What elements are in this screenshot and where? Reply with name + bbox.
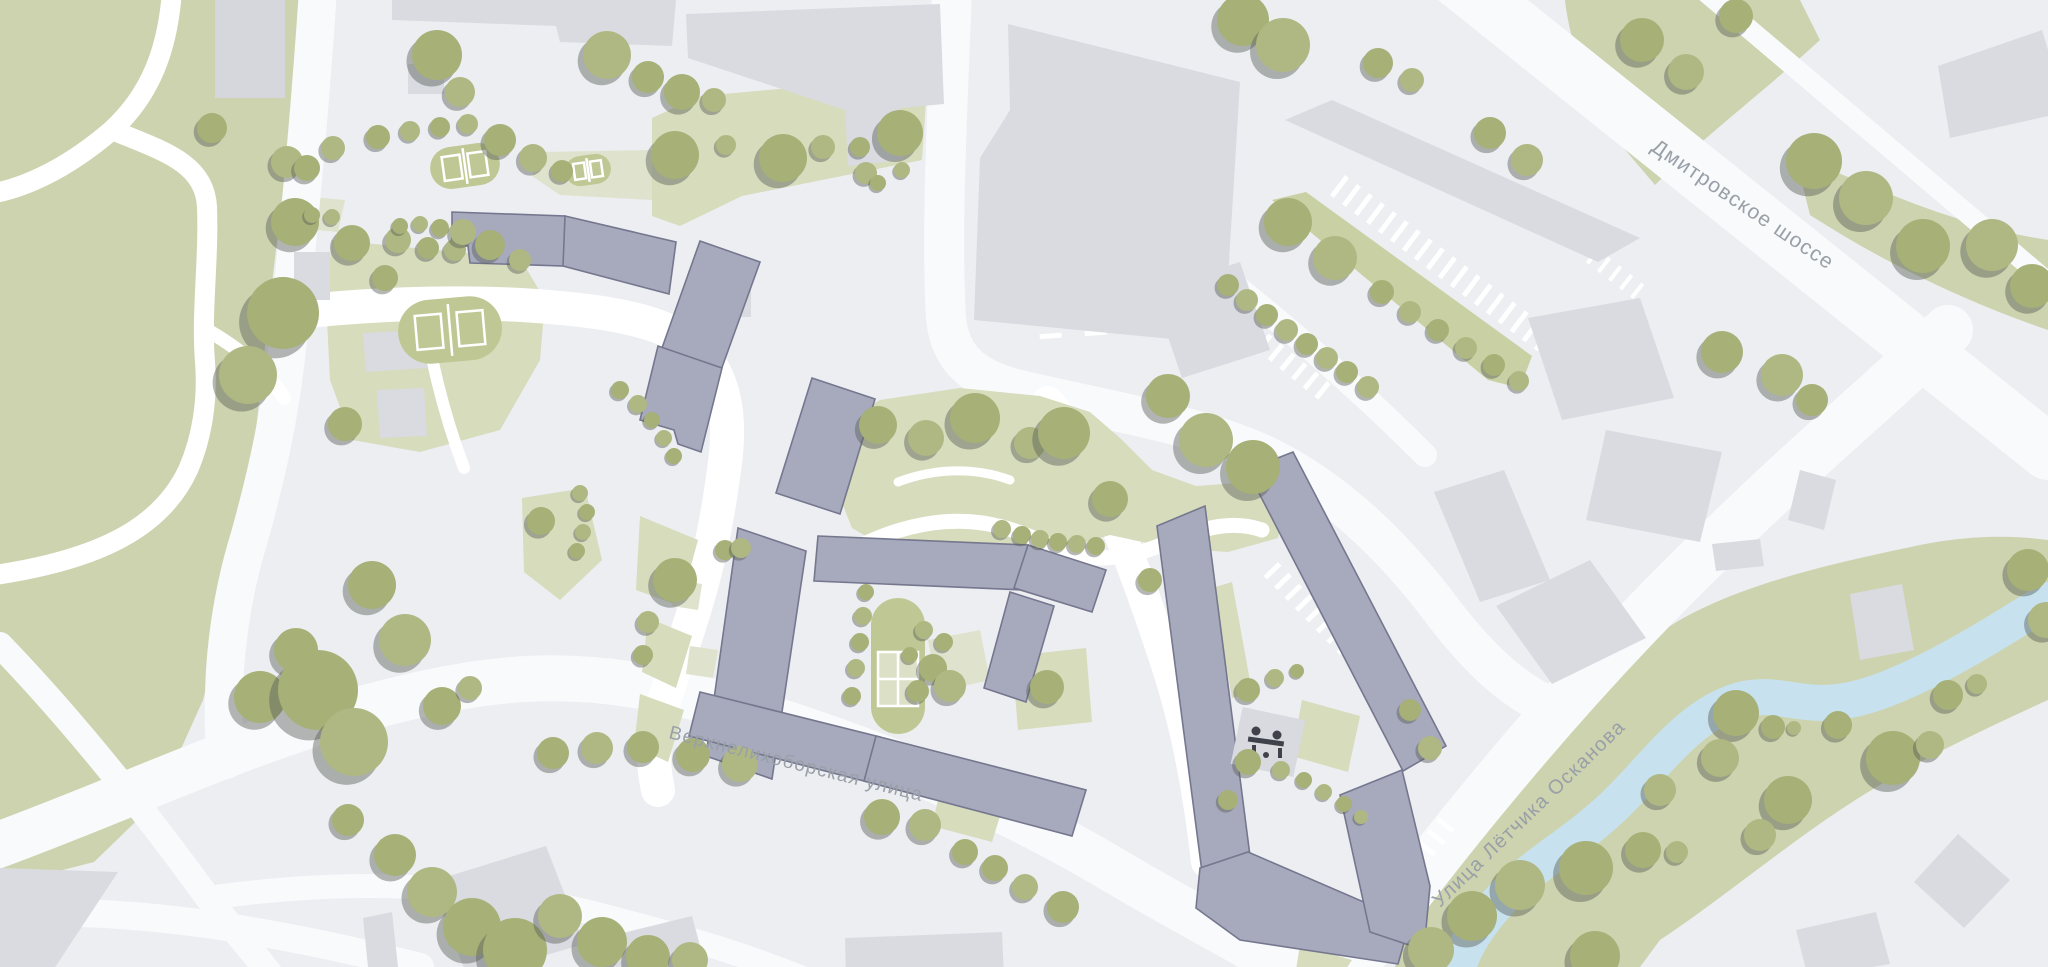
tree [850, 137, 870, 157]
tree [651, 131, 699, 179]
tree [1370, 280, 1394, 304]
tree [1256, 304, 1278, 326]
tree [1455, 337, 1477, 359]
tree [1276, 319, 1298, 341]
tree [372, 265, 398, 291]
tree [294, 155, 320, 181]
tree [1266, 669, 1284, 687]
pale-court-2 [686, 646, 718, 678]
tree [716, 135, 736, 155]
tree [1744, 819, 1776, 851]
tree [1719, 0, 1753, 33]
tree [1217, 274, 1239, 296]
tree [908, 420, 944, 456]
tree [1400, 68, 1424, 92]
tree [1354, 810, 1368, 824]
tree [374, 834, 416, 876]
tree [859, 406, 897, 444]
tree [1668, 54, 1704, 90]
tree [1313, 236, 1357, 280]
tree [854, 607, 872, 625]
tree [1796, 384, 1828, 416]
tree [1701, 739, 1739, 777]
tree [731, 538, 751, 558]
tree [445, 77, 475, 107]
tree [1761, 715, 1785, 739]
tree [637, 611, 659, 633]
tree [1235, 749, 1261, 775]
tree [1824, 711, 1852, 739]
tree [247, 277, 319, 349]
tree [1038, 407, 1090, 459]
tree [324, 209, 340, 225]
tree [1049, 533, 1067, 551]
tree [1068, 535, 1086, 553]
tree [332, 804, 364, 836]
tree [527, 507, 555, 535]
tree [1701, 331, 1743, 373]
tree [1226, 440, 1280, 494]
sports-court [871, 598, 925, 734]
tree [519, 144, 547, 172]
tree [909, 809, 941, 841]
building [215, 0, 285, 98]
tree [870, 175, 886, 191]
tree [1236, 678, 1260, 702]
tree [902, 647, 918, 663]
tree [1786, 133, 1842, 189]
tree [1336, 361, 1358, 383]
tree [1644, 774, 1676, 806]
tree [1620, 18, 1664, 62]
tree [1966, 219, 2018, 271]
tree [843, 687, 861, 705]
tree [219, 346, 277, 404]
tree [666, 448, 682, 464]
building [1712, 539, 1764, 571]
tree [632, 61, 664, 93]
tree [877, 110, 923, 156]
tree [551, 160, 573, 182]
tree [348, 561, 396, 609]
tree [1296, 772, 1312, 788]
tree [952, 839, 978, 865]
tree [1916, 731, 1944, 759]
tree [400, 121, 420, 141]
project-building [814, 536, 1028, 590]
tree [627, 731, 659, 763]
tree [431, 219, 449, 237]
tree [583, 31, 631, 79]
tree [1625, 832, 1661, 868]
tree [982, 855, 1008, 881]
tree [1264, 198, 1312, 246]
tree [537, 737, 569, 769]
tree [1316, 347, 1338, 369]
tree [858, 584, 874, 600]
tree [1357, 376, 1379, 398]
tree [1047, 891, 1079, 923]
tree [644, 412, 660, 428]
tree [1511, 144, 1543, 176]
tree [1761, 354, 1803, 396]
tree [1218, 790, 1238, 810]
tree [572, 485, 588, 501]
tree [1666, 841, 1688, 863]
tree [304, 207, 320, 223]
tree [1363, 48, 1393, 78]
tree [579, 504, 595, 520]
tree [334, 225, 370, 261]
tree [1087, 537, 1105, 555]
tree [1967, 674, 1987, 694]
tree [1296, 333, 1318, 355]
tree [1272, 761, 1290, 779]
tree [1092, 481, 1128, 517]
tree [1399, 699, 1421, 721]
tree [1427, 319, 1449, 341]
tree [1012, 874, 1038, 900]
tree [1713, 690, 1759, 736]
tree [934, 670, 966, 702]
tree [569, 543, 585, 559]
tree [1933, 680, 1963, 710]
tree [1031, 530, 1049, 548]
tree [1336, 796, 1352, 812]
tree [629, 395, 647, 413]
tree [1290, 664, 1304, 678]
tree [423, 687, 461, 725]
tree [653, 558, 697, 602]
tree [412, 30, 462, 80]
tree [1474, 117, 1506, 149]
tree [1787, 721, 1801, 735]
tree [1483, 354, 1505, 376]
tree [811, 135, 835, 159]
tree [1138, 568, 1162, 592]
tree [581, 732, 613, 764]
tree [366, 125, 390, 149]
tree [950, 393, 1000, 443]
tree [509, 249, 531, 271]
tree [450, 219, 476, 245]
tree [1146, 374, 1190, 418]
tree [633, 645, 653, 665]
tree [1418, 736, 1442, 760]
tree [907, 680, 929, 702]
tree [577, 917, 627, 967]
tree [1866, 731, 1920, 785]
tree [328, 407, 362, 441]
tree [1839, 171, 1893, 225]
tree [417, 237, 439, 259]
tree [320, 708, 388, 776]
tree [993, 520, 1011, 538]
tree [664, 74, 700, 110]
tree [1256, 18, 1310, 72]
tree [197, 113, 227, 143]
tree [1399, 301, 1421, 323]
tree [538, 894, 582, 938]
tree [1013, 526, 1031, 544]
map-surface[interactable]: Дмитровское шоссе Верхнелихоборская улиц… [0, 0, 2048, 967]
tree [915, 621, 933, 639]
tree [851, 633, 869, 651]
tree [1236, 289, 1258, 311]
tree [935, 633, 953, 651]
tree [759, 134, 807, 182]
tree [379, 614, 431, 666]
tree [1896, 219, 1950, 273]
tree [1030, 670, 1064, 704]
tree [1495, 860, 1545, 910]
tree [1509, 371, 1529, 391]
tree [430, 117, 450, 137]
building [377, 388, 427, 438]
tree [1316, 784, 1332, 800]
tree [392, 218, 408, 234]
tree [321, 136, 345, 160]
tree [1559, 841, 1613, 895]
tree [575, 524, 591, 540]
building [363, 912, 398, 967]
tree [458, 114, 478, 134]
tree [847, 659, 865, 677]
tree [484, 124, 516, 156]
tree [894, 162, 910, 178]
tree [864, 799, 900, 835]
tree [458, 676, 482, 700]
tree [1764, 776, 1812, 824]
building [845, 932, 1004, 967]
tree [702, 88, 726, 112]
tree [475, 230, 505, 260]
tree [611, 381, 629, 399]
tree [412, 216, 428, 232]
tree [656, 430, 672, 446]
tree [2007, 549, 2048, 591]
